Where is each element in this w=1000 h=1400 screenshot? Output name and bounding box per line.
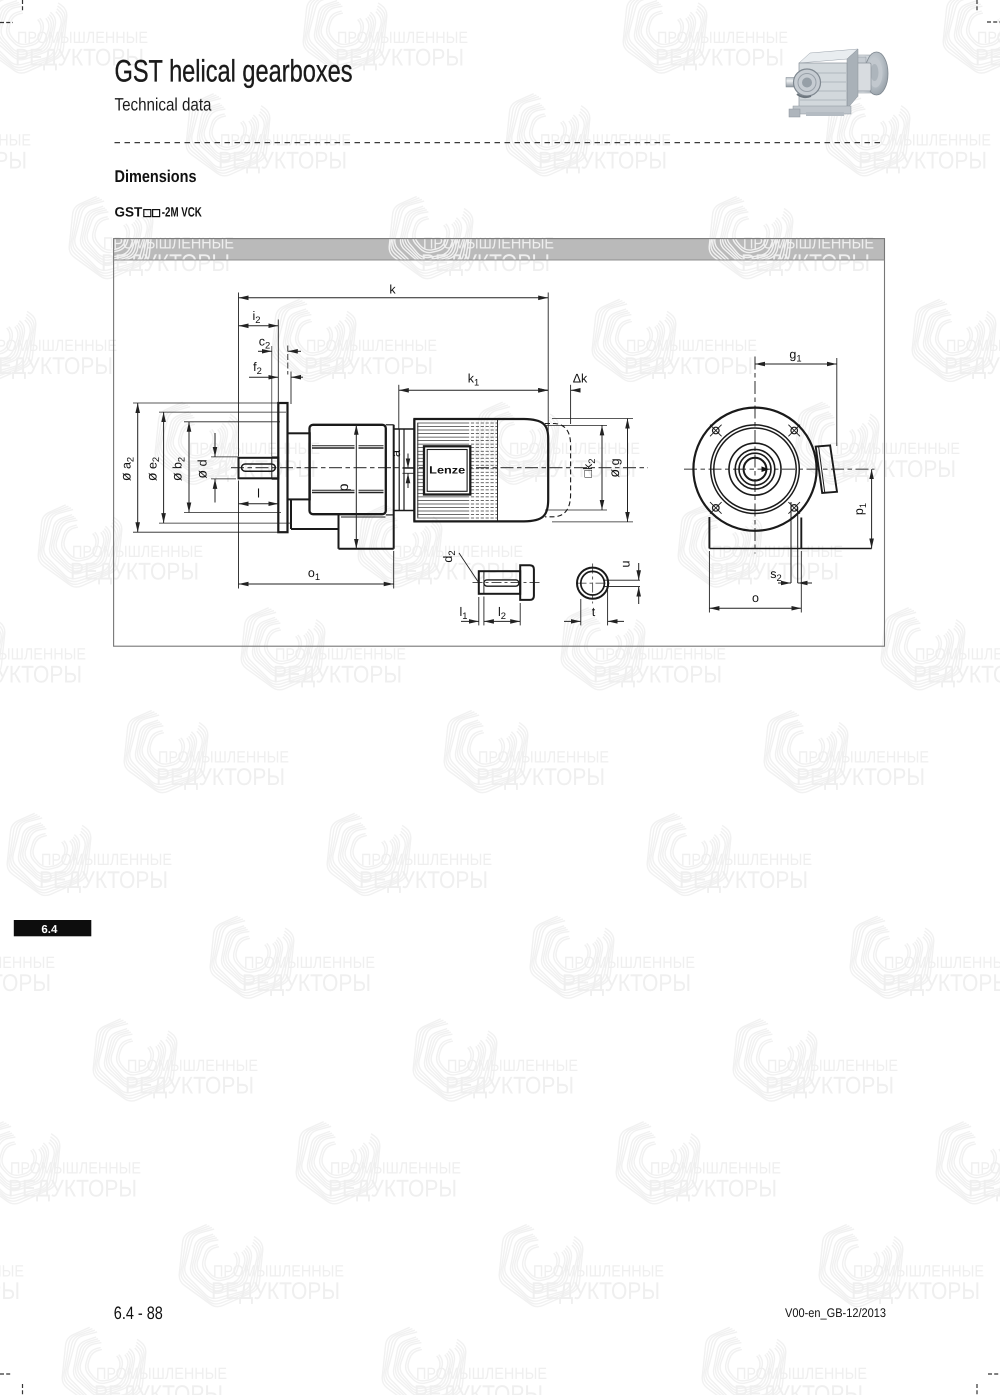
svg-text:t: t	[592, 605, 596, 619]
svg-text:ø g: ø g	[607, 458, 623, 477]
svg-text:РЕДУКТОРЫ: РЕДУКТОРЫ	[765, 1073, 894, 1100]
svg-text:РЕДУКТОРЫ: РЕДУКТОРЫ	[882, 970, 1000, 997]
svg-text:РЕДУКТОРЫ: РЕДУКТОРЫ	[445, 1073, 574, 1100]
svg-text:GST helical gearboxes: GST helical gearboxes	[115, 53, 353, 88]
svg-text:РЕДУКТОРЫ: РЕДУКТОРЫ	[734, 1381, 863, 1395]
svg-text:РЕДУКТОРЫ: РЕДУКТОРЫ	[414, 1381, 543, 1395]
svg-text:РЕДУКТОРЫ: РЕДУКТОРЫ	[655, 45, 784, 72]
svg-text:РЕДУКТОРЫ: РЕДУКТОРЫ	[94, 1381, 223, 1395]
svg-text:РЕДУКТОРЫ: РЕДУКТОРЫ	[156, 764, 285, 791]
svg-text:6.4: 6.4	[41, 924, 58, 936]
svg-text:Lenze: Lenze	[429, 465, 465, 477]
svg-text:РЕДУКТОРЫ: РЕДУКТОРЫ	[531, 1278, 660, 1305]
svg-text:РЕДУКТОРЫ: РЕДУКТОРЫ	[827, 456, 956, 483]
svg-text:k: k	[389, 283, 396, 297]
svg-text:РЕДУКТОРЫ: РЕДУКТОРЫ	[538, 147, 667, 174]
svg-text:РЕДУКТОРЫ: РЕДУКТОРЫ	[125, 1073, 254, 1100]
svg-text:РЕДУКТОРЫ: РЕДУКТОРЫ	[359, 867, 488, 894]
svg-text:GST: GST	[115, 204, 144, 219]
svg-text:Δk: Δk	[573, 372, 588, 386]
svg-text:РЕДУКТОРЫ: РЕДУКТОРЫ	[593, 661, 722, 688]
svg-text:6.4 - 88: 6.4 - 88	[114, 1303, 163, 1323]
svg-text:РЕДУКТОРЫ: РЕДУКТОРЫ	[944, 353, 1000, 380]
svg-text:РЕДУКТОРЫ: РЕДУКТОРЫ	[913, 661, 1000, 688]
svg-text:p: p	[335, 483, 351, 491]
svg-text:-2M VCK: -2M VCK	[162, 204, 202, 219]
svg-text:РЕДУКТОРЫ: РЕДУКТОРЫ	[562, 970, 691, 997]
svg-text:РЕДУКТОРЫ: РЕДУКТОРЫ	[39, 867, 168, 894]
svg-text:РЕДУКТОРЫ: РЕДУКТОРЫ	[858, 147, 987, 174]
svg-text:РЕДУКТОРЫ: РЕДУКТОРЫ	[679, 867, 808, 894]
svg-text:a: a	[389, 450, 403, 457]
svg-text:РЕДУКТОРЫ: РЕДУКТОРЫ	[796, 764, 925, 791]
svg-text:РЕДУКТОРЫ: РЕДУКТОРЫ	[335, 45, 464, 72]
svg-text:РЕДУКТОРЫ: РЕДУКТОРЫ	[218, 147, 347, 174]
svg-text:РЕДУКТОРЫ: РЕДУКТОРЫ	[624, 353, 753, 380]
svg-text:РЕДУКТОРЫ: РЕДУКТОРЫ	[0, 970, 51, 997]
svg-text:РЕДУКТОРЫ: РЕДУКТОРЫ	[741, 250, 870, 277]
svg-text:РЕДУКТОРЫ: РЕДУКТОРЫ	[0, 1278, 20, 1305]
svg-text:РЕДУКТОРЫ: РЕДУКТОРЫ	[101, 250, 230, 277]
svg-text:РЕДУКТОРЫ: РЕДУКТОРЫ	[0, 147, 27, 174]
svg-text:РЕДУКТОРЫ: РЕДУКТОРЫ	[975, 45, 1000, 72]
svg-text:РЕДУКТОРЫ: РЕДУКТОРЫ	[8, 1175, 137, 1202]
svg-text:РЕДУКТОРЫ: РЕДУКТОРЫ	[273, 661, 402, 688]
svg-text:u: u	[619, 560, 633, 567]
svg-text:РЕДУКТОРЫ: РЕДУКТОРЫ	[70, 559, 199, 586]
svg-text:РЕДУКТОРЫ: РЕДУКТОРЫ	[304, 353, 433, 380]
svg-text:o: o	[752, 591, 759, 605]
svg-text:V00-en_GB-12/2013: V00-en_GB-12/2013	[785, 1306, 886, 1320]
svg-text:РЕДУКТОРЫ: РЕДУКТОРЫ	[421, 250, 550, 277]
svg-text:ø d: ø d	[195, 459, 211, 478]
svg-text:РЕДУКТОРЫ: РЕДУКТОРЫ	[648, 1175, 777, 1202]
svg-text:РЕДУКТОРЫ: РЕДУКТОРЫ	[242, 970, 371, 997]
svg-text:РЕДУКТОРЫ: РЕДУКТОРЫ	[476, 764, 605, 791]
svg-text:РЕДУКТОРЫ: РЕДУКТОРЫ	[328, 1175, 457, 1202]
svg-text:РЕДУКТОРЫ: РЕДУКТОРЫ	[851, 1278, 980, 1305]
svg-text:Dimensions: Dimensions	[115, 167, 197, 186]
svg-text:l: l	[257, 487, 260, 501]
svg-text:РЕДУКТОРЫ: РЕДУКТОРЫ	[0, 661, 82, 688]
svg-text:РЕДУКТОРЫ: РЕДУКТОРЫ	[211, 1278, 340, 1305]
svg-text:Technical data: Technical data	[115, 95, 213, 115]
svg-text:РЕДУКТОРЫ: РЕДУКТОРЫ	[968, 1175, 1000, 1202]
svg-text:РЕДУКТОРЫ: РЕДУКТОРЫ	[0, 353, 113, 380]
